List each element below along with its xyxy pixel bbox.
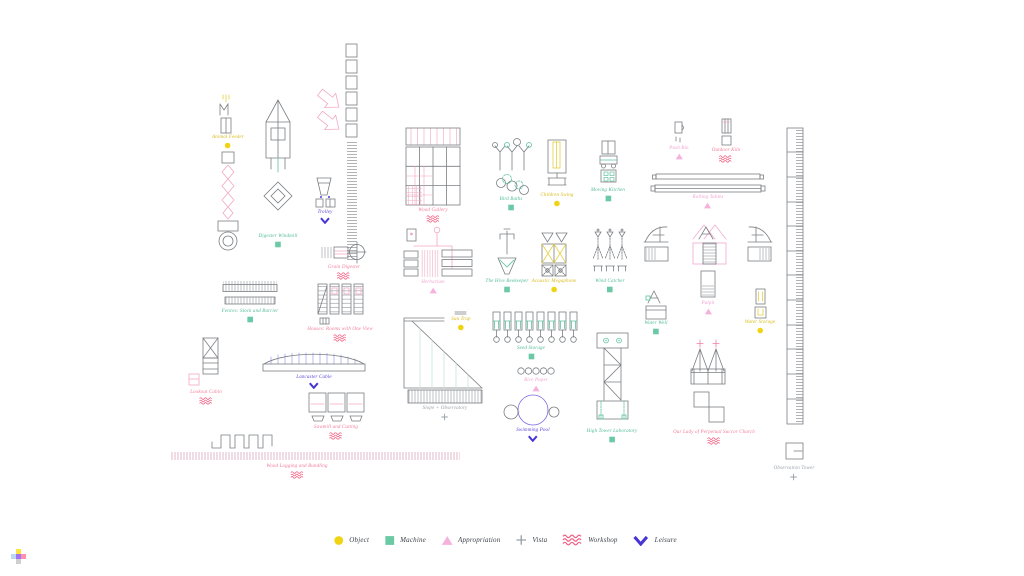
stepped-profile-drawing <box>212 435 272 448</box>
sail-frame-right-drawing <box>748 227 772 261</box>
rolling-tables-drawing <box>651 174 765 192</box>
observation-tower-drawing <box>786 128 803 459</box>
legend-label-appropriation: Appropriation <box>458 536 500 544</box>
pulpit-drawing <box>693 225 726 297</box>
hive-beekeeper-drawing <box>498 229 516 274</box>
wood-gallery-drawing <box>406 128 460 205</box>
water-chain-drawing <box>218 152 238 250</box>
animal-feeder-drawing <box>220 95 231 133</box>
leisure-marker-icon <box>633 531 650 549</box>
chute-arrows-drawing <box>314 85 344 136</box>
legend-item-vista: Vista <box>515 531 547 549</box>
legend-label-machine: Machine <box>400 536 426 544</box>
workshop-marker-icon <box>562 531 583 549</box>
legend-label-leisure: Leisure <box>655 536 677 544</box>
legend-item-appropriation: Appropriation <box>441 531 500 549</box>
catalog-line-art <box>0 0 1024 576</box>
legend: ObjectMachineAppropriationVistaWorkshopL… <box>333 531 677 549</box>
drawing-sheet: Animal FeederDigester WindmillTrolleyGra… <box>0 0 1024 576</box>
acoustic-megaphone-drawing <box>542 233 567 276</box>
sawmill-drawing <box>309 393 364 421</box>
wind-catcher-drawing <box>593 229 627 271</box>
kiln-drawing <box>722 119 731 145</box>
trolley-drawing <box>316 178 335 207</box>
legend-label-vista: Vista <box>532 536 547 544</box>
legend-item-workshop: Workshop <box>562 531 617 549</box>
seed-storage-drawing <box>493 312 577 342</box>
legend-item-machine: Machine <box>384 531 426 549</box>
sun-trap-drawing <box>455 312 466 314</box>
appropriation-marker-icon <box>441 531 453 549</box>
ladder-houses-drawing <box>318 284 363 324</box>
lookout-cabin-drawing <box>189 338 218 385</box>
object-marker-icon <box>333 531 344 549</box>
water-storage-drawing <box>755 289 766 318</box>
registration-cross <box>11 549 26 564</box>
moving-kitchen-drawing <box>600 141 617 182</box>
legend-item-object: Object <box>333 531 369 549</box>
church-drawing <box>691 340 725 422</box>
stacked-crates-ruler-drawing <box>346 44 357 262</box>
children-swing-drawing <box>548 140 566 185</box>
legend-label-object: Object <box>349 536 369 544</box>
grain-digester-drawing <box>320 242 366 263</box>
log-ruler-drawing <box>170 452 460 460</box>
digester-windmill-drawing <box>264 100 292 210</box>
push-bin-drawing <box>675 122 684 142</box>
high-tower-laboratory-drawing <box>597 333 628 419</box>
vista-marker-icon <box>515 531 527 549</box>
water-well-drawing <box>646 291 666 319</box>
lancaster-cable-drawing <box>263 353 365 371</box>
bird-baths-drawing <box>493 139 532 195</box>
sail-frame-left-drawing <box>644 227 668 261</box>
swimming-pool-drawing <box>504 395 559 425</box>
legend-item-leisure: Leisure <box>633 531 677 549</box>
herbarium-drawing <box>404 227 472 277</box>
machine-marker-icon <box>384 531 395 549</box>
legend-label-workshop: Workshop <box>588 536 617 544</box>
slope-observatory-drawing <box>404 318 482 403</box>
fences-drawing <box>223 281 277 304</box>
rice-paper-drawing <box>518 368 554 374</box>
